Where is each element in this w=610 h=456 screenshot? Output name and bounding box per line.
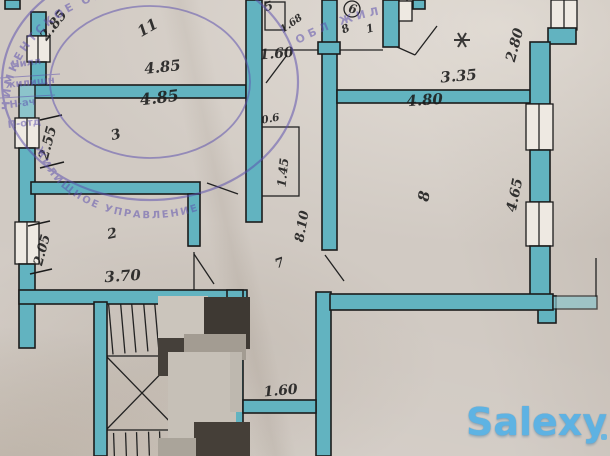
measurement-160-top: 1.60 bbox=[259, 45, 295, 64]
measurement-810: 8.10 bbox=[292, 209, 312, 243]
measurement-335: 3.35 bbox=[440, 65, 478, 86]
measurement-160-bottom: 1.60 bbox=[263, 382, 299, 401]
door-leaf-corridor bbox=[325, 255, 344, 281]
star-marker bbox=[454, 33, 470, 47]
room-number-2: 2 bbox=[105, 225, 119, 243]
room-number-3: 3 bbox=[109, 126, 123, 144]
wc-mark-3: 1 bbox=[365, 21, 376, 36]
room-number-7: 7 bbox=[273, 255, 287, 272]
closet-width: 1.45 bbox=[275, 157, 292, 188]
measurement-480: 4.80 bbox=[406, 90, 444, 111]
floor-plan-photo: 2.85 11 4.85 4.85 2.55 3 1.60 5 1.68 6 8… bbox=[0, 0, 610, 456]
measurement-485-room3: 4.85 bbox=[139, 86, 180, 110]
room-number-8: 8 bbox=[414, 189, 434, 203]
door-leaf-room2 bbox=[194, 254, 214, 284]
watermark-artifact bbox=[601, 434, 607, 440]
censor-block bbox=[158, 296, 250, 456]
floor-plan-drawing: 2.85 11 4.85 4.85 2.55 3 1.60 5 1.68 6 8… bbox=[0, 0, 610, 456]
measurement-465: 4.65 bbox=[504, 177, 527, 214]
measurement-485-top: 4.85 bbox=[143, 56, 181, 78]
measurement-280: 2.80 bbox=[503, 26, 528, 64]
salexy-watermark: Salexy bbox=[466, 400, 607, 444]
closet-depth: 0.6 bbox=[260, 111, 281, 126]
door-leaf-top-right-room bbox=[415, 26, 437, 55]
tally-mark: 11 bbox=[134, 15, 161, 41]
measurement-370: 3.70 bbox=[104, 266, 142, 287]
